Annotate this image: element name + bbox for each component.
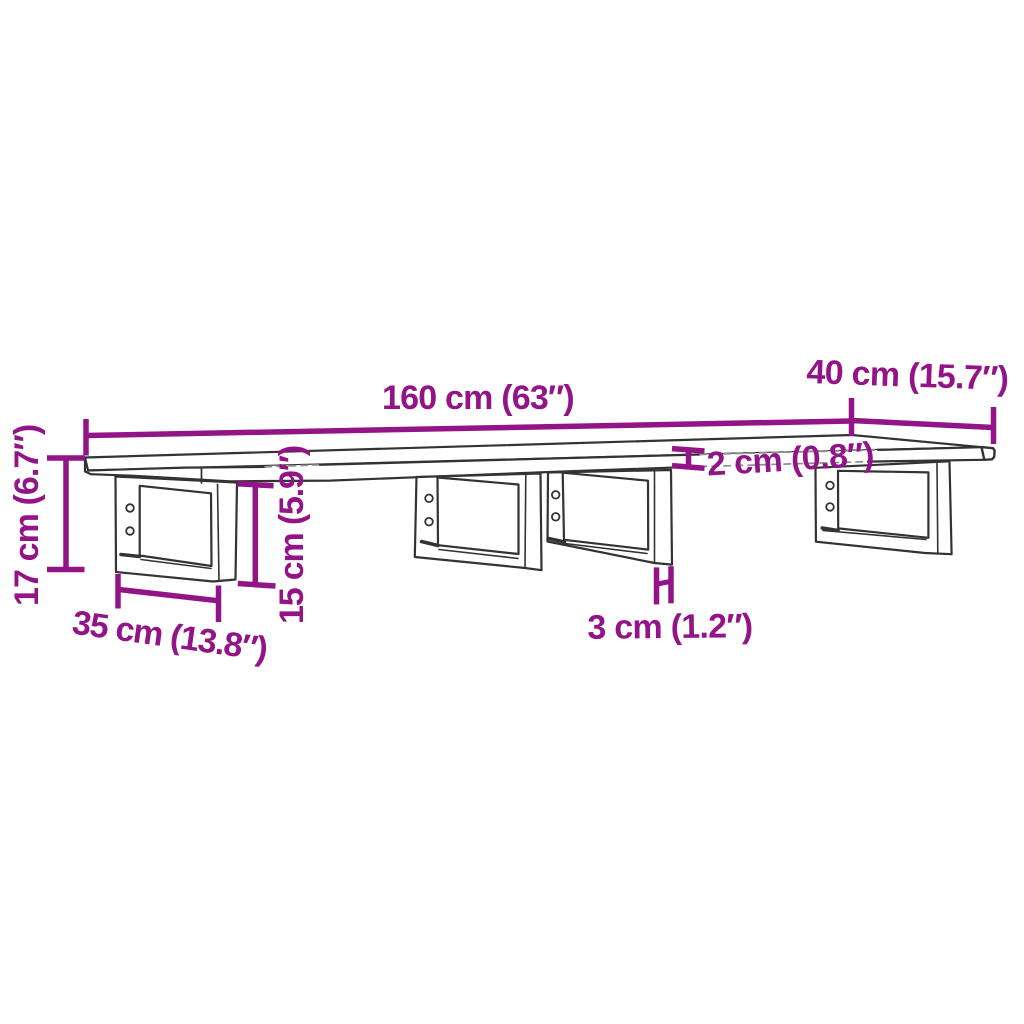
svg-text:40 cm (15.7″): 40 cm (15.7″) [806,353,1009,398]
svg-text:35 cm (13.8″): 35 cm (13.8″) [70,604,269,669]
svg-text:3 cm (1.2″): 3 cm (1.2″) [587,607,752,646]
svg-text:15 cm (5.9″): 15 cm (5.9″) [273,446,311,624]
svg-text:160 cm (63″): 160 cm (63″) [382,379,574,417]
svg-text:17 cm (6.7″): 17 cm (6.7″) [8,425,46,606]
